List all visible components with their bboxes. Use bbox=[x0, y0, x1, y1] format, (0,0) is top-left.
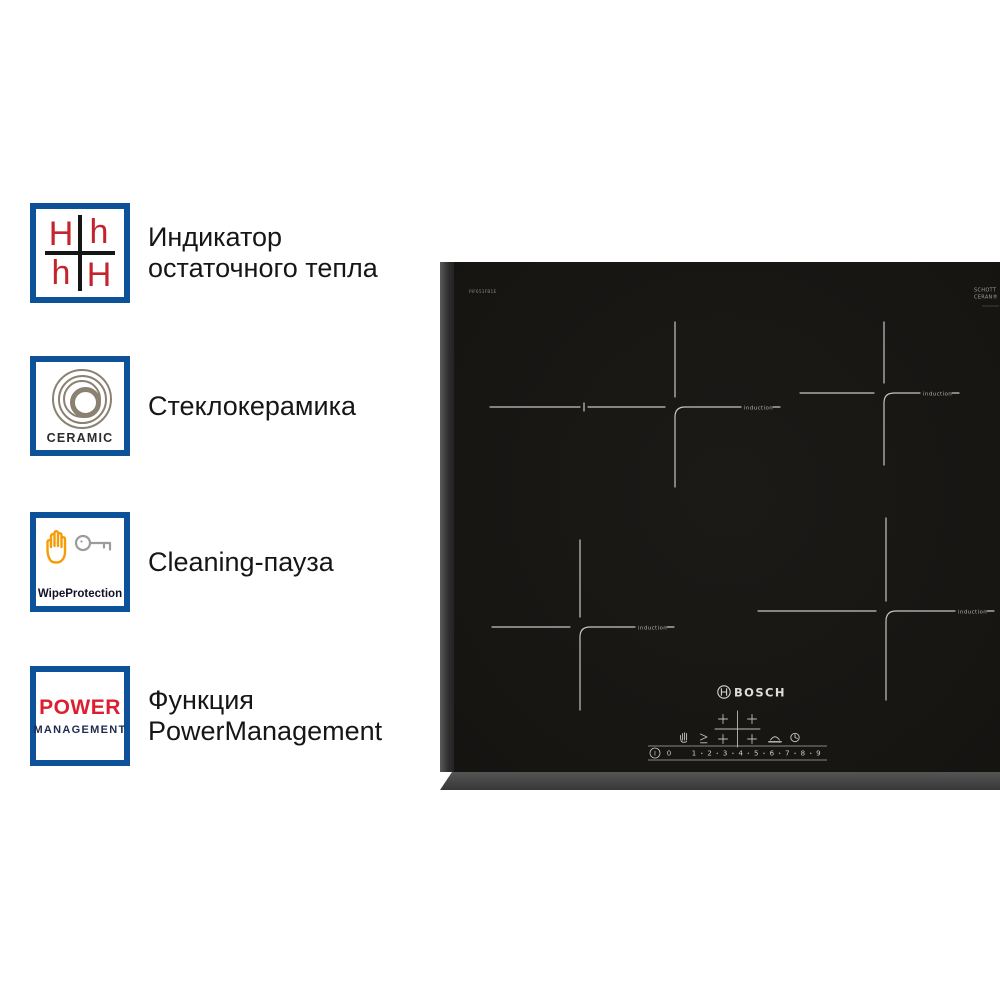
title-line: PowerManagement bbox=[148, 716, 382, 747]
letter-h-topright: h bbox=[82, 215, 116, 249]
zone-label-top-right: induction bbox=[923, 391, 952, 397]
svg-text:SCHOTT: SCHOTT bbox=[974, 288, 997, 294]
key-icon bbox=[76, 536, 110, 550]
letter-h-bottomleft: h bbox=[44, 256, 78, 290]
feature-glass-ceramic: CERAMIC Стеклокерамика bbox=[30, 356, 356, 456]
timer-clock-icon bbox=[791, 733, 799, 741]
ceramic-badge-icon: CERAMIC bbox=[30, 356, 130, 456]
model-code-print: PIF651FB1E bbox=[469, 289, 496, 295]
level-4: 4 bbox=[738, 750, 743, 758]
zone-selector-grid bbox=[715, 711, 760, 747]
ceramic-caption: CERAMIC bbox=[36, 431, 124, 445]
power-level-slider: I 0 1 2 3 4 5 6 7 8 9 bbox=[648, 746, 827, 760]
power-management-badge-icon: POWER MANAGEMENT bbox=[30, 666, 130, 766]
wipe-protection-badge-icon: WipeProtection bbox=[30, 512, 130, 612]
pause-resume-icon bbox=[701, 734, 708, 743]
feature-title-glass-ceramic: Стеклокерамика bbox=[148, 391, 356, 422]
title-line: Стеклокерамика bbox=[148, 391, 356, 422]
cooktop-front-edge bbox=[440, 772, 1000, 790]
feature-title-power-management: Функция PowerManagement bbox=[148, 685, 382, 747]
level-7: 7 bbox=[785, 750, 789, 758]
schott-ceran-logo: SCHOTT CERAN® bbox=[974, 288, 999, 307]
child-lock-hand-icon bbox=[681, 733, 687, 743]
svg-text:CERAN®: CERAN® bbox=[974, 294, 998, 301]
level-5: 5 bbox=[754, 750, 758, 758]
keep-warm-icon bbox=[769, 737, 781, 742]
wipe-protection-caption: WipeProtection bbox=[36, 588, 124, 600]
feature-title-cleaning-pause: Cleaning-пауза bbox=[148, 547, 334, 578]
product-infographic: H h h H Индикатор остаточного тепла CERA… bbox=[0, 0, 1000, 1000]
management-word: MANAGEMENT bbox=[33, 724, 126, 736]
title-line: остаточного тепла bbox=[148, 253, 378, 284]
level-8: 8 bbox=[801, 750, 805, 758]
power-word: POWER bbox=[39, 696, 121, 720]
level-3: 3 bbox=[723, 750, 727, 758]
residual-heat-badge-icon: H h h H bbox=[30, 203, 130, 303]
level-1: 1 bbox=[692, 750, 696, 758]
feature-title-residual-heat: Индикатор остаточного тепла bbox=[148, 222, 378, 284]
zone-cross-top-left bbox=[490, 322, 780, 487]
title-line: Индикатор bbox=[148, 222, 378, 253]
bosch-logo: BOSCH bbox=[718, 685, 786, 699]
power-symbol: I bbox=[654, 749, 656, 757]
feature-residual-heat: H h h H Индикатор остаточного тепла bbox=[30, 203, 378, 303]
cross-vertical-line bbox=[78, 215, 82, 291]
zone-label-bottom-right: induction bbox=[958, 609, 987, 615]
zone-label-top-left: induction bbox=[744, 405, 773, 411]
feature-cleaning-pause: WipeProtection Cleaning-пауза bbox=[30, 512, 334, 612]
level-9: 9 bbox=[816, 750, 820, 758]
letter-H-topleft: H bbox=[44, 217, 78, 251]
cooktop-photo: PIF651FB1E SCHOTT CERAN® bbox=[440, 262, 1000, 790]
cooktop-left-edge bbox=[440, 262, 454, 772]
hand-icon bbox=[48, 531, 66, 562]
title-line: Cleaning-пауза bbox=[148, 547, 334, 578]
cooktop-markings: PIF651FB1E SCHOTT CERAN® bbox=[454, 262, 1000, 772]
bosch-emblem-icon bbox=[718, 686, 730, 698]
cooktop-glass-surface: PIF651FB1E SCHOTT CERAN® bbox=[454, 262, 1000, 772]
feature-power-management: POWER MANAGEMENT Функция PowerManagement bbox=[30, 666, 382, 766]
level-6: 6 bbox=[770, 750, 775, 758]
hh-letters-icon: H h h H bbox=[36, 209, 124, 297]
bosch-wordmark: BOSCH bbox=[734, 685, 786, 699]
level-0: 0 bbox=[667, 750, 671, 758]
hand-and-key-icon bbox=[44, 527, 116, 567]
zone-label-bottom-left: induction bbox=[638, 625, 667, 631]
level-2: 2 bbox=[707, 750, 711, 758]
letter-H-bottomright: H bbox=[82, 258, 116, 292]
title-line: Функция bbox=[148, 685, 382, 716]
